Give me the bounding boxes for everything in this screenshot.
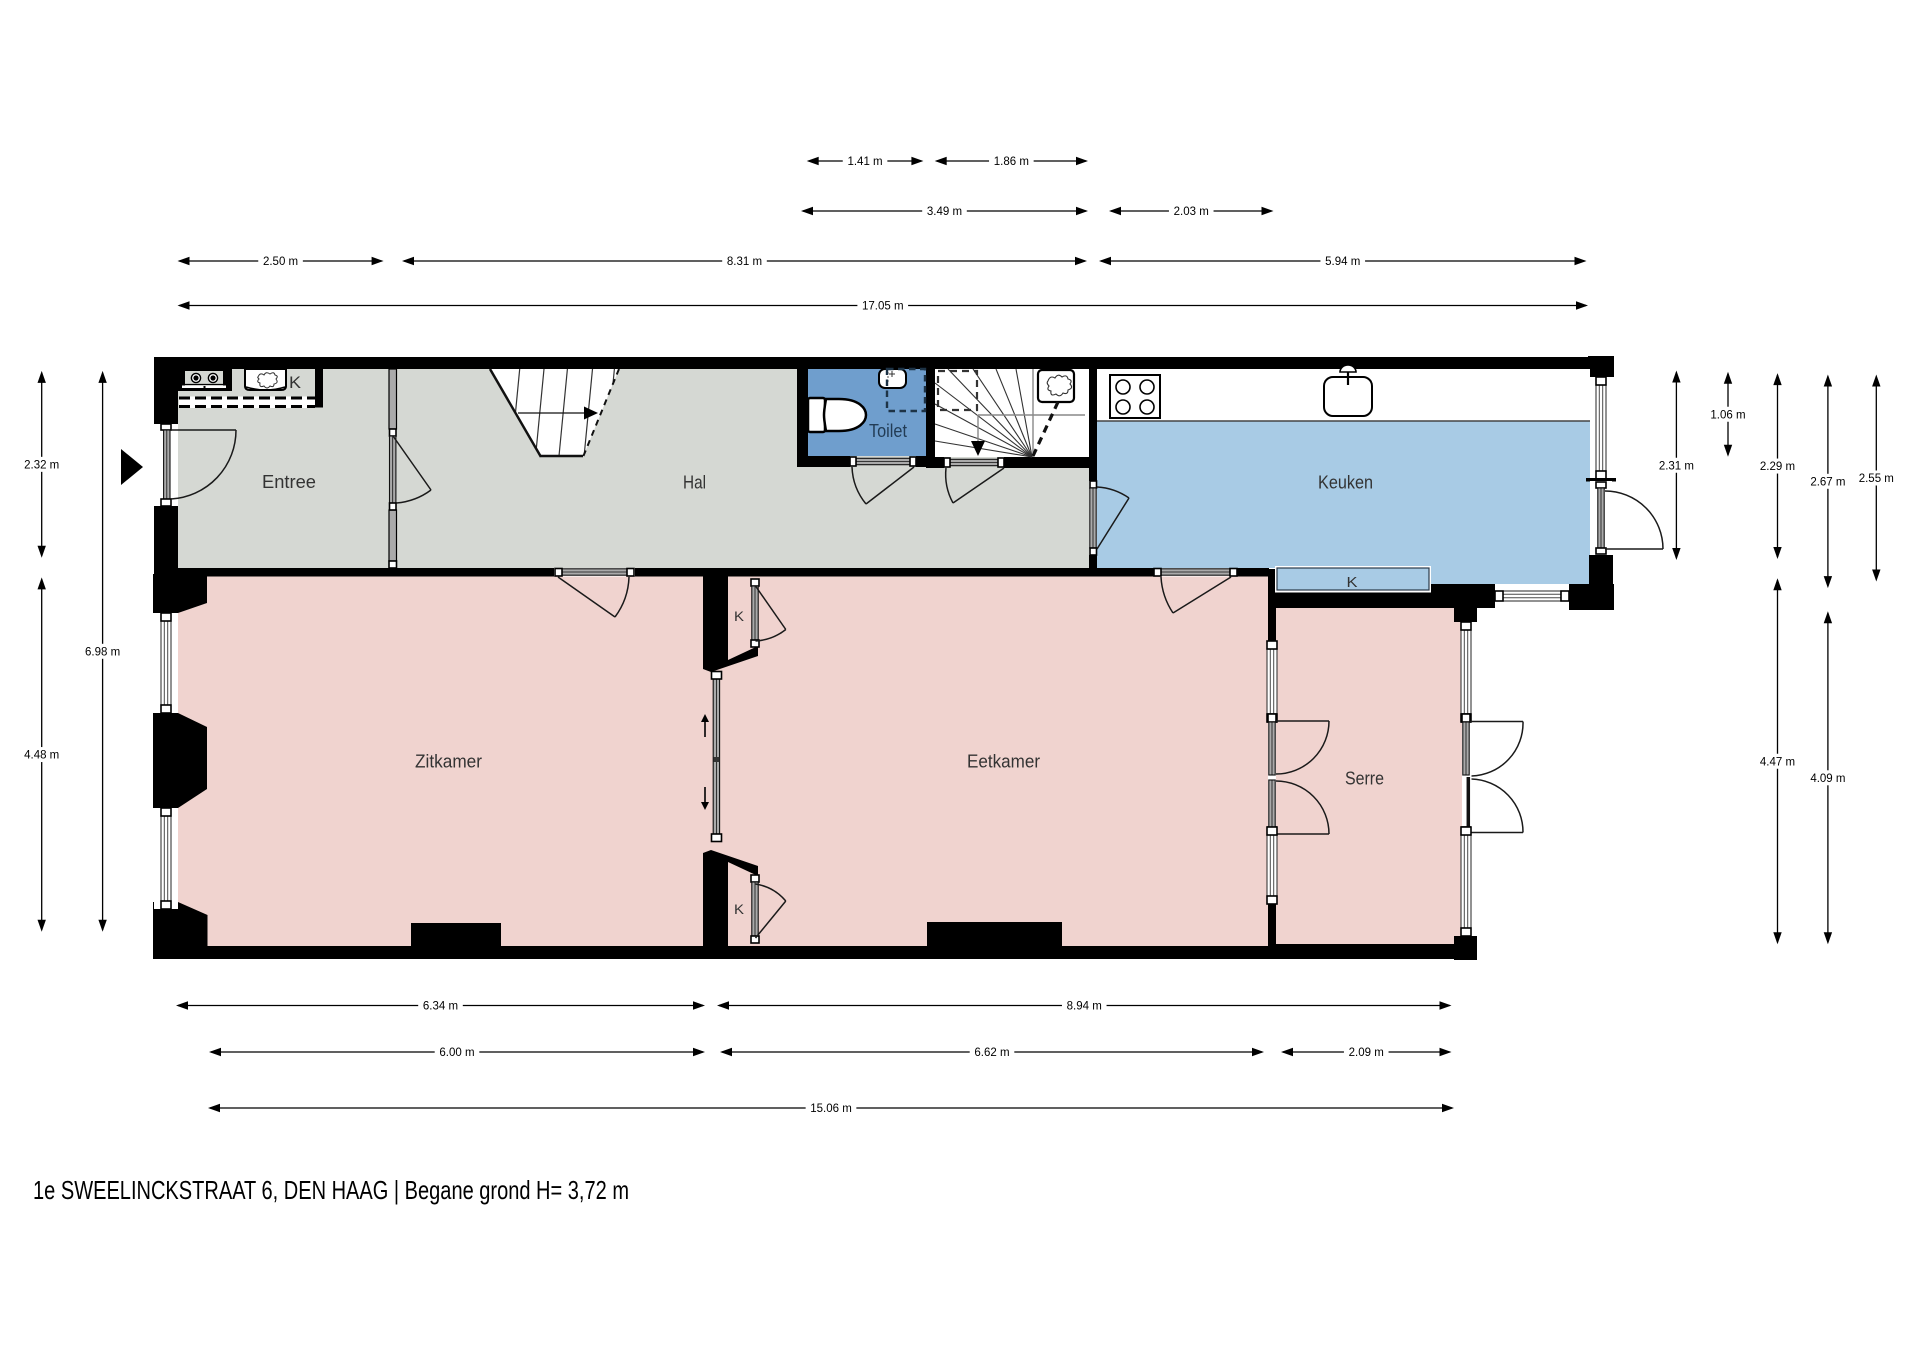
svg-text:6.34 m: 6.34 m: [423, 1001, 458, 1013]
svg-text:2.29 m: 2.29 m: [1760, 461, 1795, 473]
svg-text:6.00 m: 6.00 m: [439, 1047, 474, 1059]
svg-text:1.86 m: 1.86 m: [994, 156, 1029, 168]
svg-text:Zitkamer: Zitkamer: [415, 751, 482, 772]
svg-text:1e SWEELINCKSTRAAT 6, DEN HAAG: 1e SWEELINCKSTRAAT 6, DEN HAAG | Begane …: [33, 1175, 629, 1205]
svg-text:2.32 m: 2.32 m: [24, 459, 59, 471]
svg-text:2.50 m: 2.50 m: [263, 256, 298, 268]
svg-text:Hal: Hal: [683, 472, 706, 493]
svg-text:5.94 m: 5.94 m: [1325, 256, 1360, 268]
svg-text:2.03 m: 2.03 m: [1174, 206, 1209, 218]
svg-text:4.48 m: 4.48 m: [24, 750, 59, 762]
svg-text:Toilet: Toilet: [869, 420, 907, 441]
svg-text:6.98 m: 6.98 m: [85, 646, 120, 658]
svg-text:15.06 m: 15.06 m: [810, 1103, 852, 1115]
svg-text:Keuken: Keuken: [1318, 472, 1373, 493]
svg-text:K: K: [734, 608, 745, 624]
svg-text:4.47 m: 4.47 m: [1760, 756, 1795, 768]
svg-text:3.49 m: 3.49 m: [927, 206, 962, 218]
svg-text:Entree: Entree: [262, 471, 316, 492]
svg-text:K: K: [1347, 574, 1358, 591]
svg-text:Serre: Serre: [1345, 768, 1384, 789]
svg-text:17.05 m: 17.05 m: [862, 301, 904, 313]
svg-text:2.09 m: 2.09 m: [1349, 1047, 1384, 1059]
svg-text:K: K: [289, 373, 302, 392]
svg-text:2.31 m: 2.31 m: [1659, 460, 1694, 472]
svg-text:8.31 m: 8.31 m: [727, 256, 762, 268]
svg-text:8.94 m: 8.94 m: [1067, 1001, 1102, 1013]
svg-text:K: K: [734, 901, 745, 917]
svg-text:1.41 m: 1.41 m: [847, 156, 882, 168]
svg-text:2.67 m: 2.67 m: [1810, 476, 1845, 488]
svg-text:4.09 m: 4.09 m: [1810, 773, 1845, 785]
svg-text:6.62 m: 6.62 m: [974, 1047, 1009, 1059]
svg-text:Eetkamer: Eetkamer: [967, 751, 1040, 772]
svg-text:1.06 m: 1.06 m: [1710, 409, 1745, 421]
svg-text:2.55 m: 2.55 m: [1859, 473, 1894, 485]
